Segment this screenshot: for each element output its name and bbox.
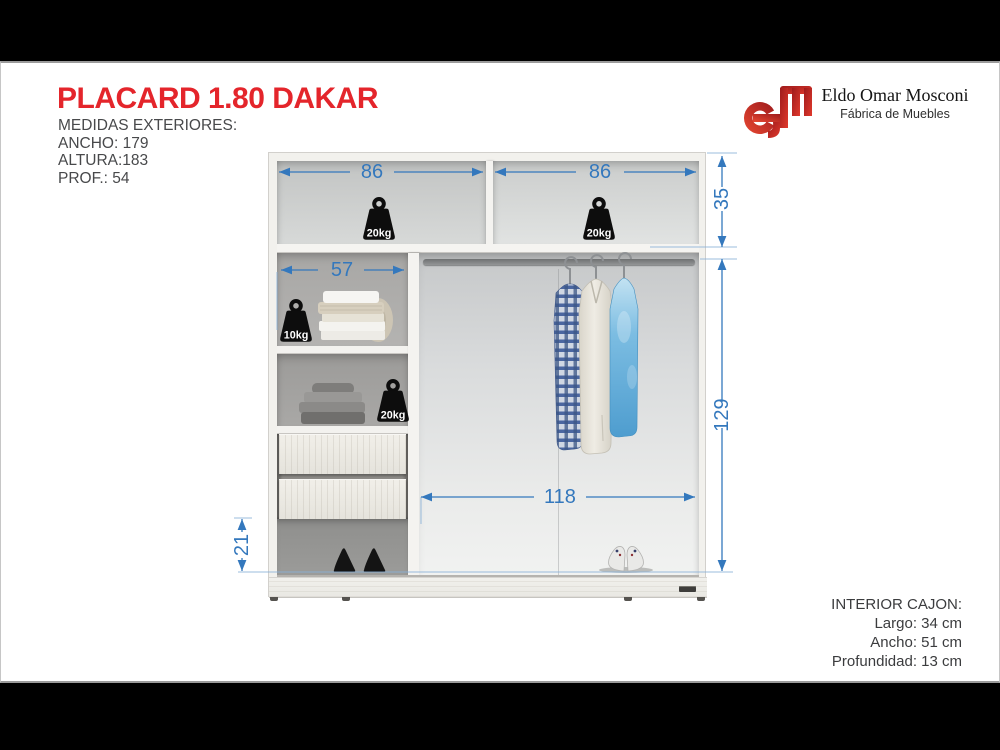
measurements-heading: MEDIDAS EXTERIORES: xyxy=(58,117,237,135)
weight-icon-20kg: 20kg xyxy=(359,197,399,243)
measurement-depth: PROF.: 54 xyxy=(58,170,237,188)
folded-clothes xyxy=(296,382,372,425)
wardrobe-foot xyxy=(342,597,350,601)
weight-icon-20kg: 20kg xyxy=(373,379,413,425)
shelf-board xyxy=(277,346,408,354)
weight-icon-20kg: 20kg xyxy=(579,197,619,243)
top-divider xyxy=(486,161,493,244)
folded-towels xyxy=(315,283,395,345)
page-title: PLACARD 1.80 DAKAR xyxy=(57,82,378,116)
hanging-garments xyxy=(544,247,654,469)
dimension-bottom-space-height: 21 xyxy=(231,523,253,567)
drawer-info-title: INTERIOR CAJON: xyxy=(640,595,962,614)
drawer-stack xyxy=(277,434,408,519)
drawer-info-length: Largo: 34 cm xyxy=(640,614,962,633)
black-heels xyxy=(330,546,394,573)
flyer: PLACARD 1.80 DAKAR MEDIDAS EXTERIORES: A… xyxy=(0,0,1000,750)
weight-icon-10kg: 10kg xyxy=(276,299,316,345)
svg-text:20kg: 20kg xyxy=(367,228,392,240)
shelf-board xyxy=(277,426,408,434)
drawer-interior-info: INTERIOR CAJON: Largo: 34 cm Ancho: 51 c… xyxy=(640,595,962,671)
blue-dress xyxy=(610,278,638,437)
drawer-info-width: Ancho: 51 cm xyxy=(640,633,962,652)
drawer-bottom xyxy=(279,479,406,520)
brand-logo-icon xyxy=(740,76,818,140)
svg-text:20kg: 20kg xyxy=(587,228,612,240)
dimension-left-shelf-width: 57 xyxy=(320,259,364,281)
drawer-info-depth: Profundidad: 13 cm xyxy=(640,652,962,671)
svg-text:20kg: 20kg xyxy=(381,410,406,422)
white-sneakers xyxy=(597,545,655,573)
brand-tagline: Fábrica de Muebles xyxy=(820,107,970,121)
plinth-handle xyxy=(679,586,696,592)
svg-text:10kg: 10kg xyxy=(284,330,309,342)
dimension-top-section-height: 35 xyxy=(711,177,733,221)
wardrobe-foot xyxy=(624,597,632,601)
dimension-top-right-width: 86 xyxy=(578,161,622,183)
brand-name: Eldo Omar Mosconi xyxy=(820,85,970,106)
dimension-top-left-width: 86 xyxy=(350,161,394,183)
wardrobe-foot xyxy=(270,597,278,601)
cream-coat xyxy=(579,279,613,454)
measurement-width: ANCHO: 179 xyxy=(58,135,237,153)
dimension-hanging-height: 129 xyxy=(711,391,733,439)
measurement-height: ALTURA:183 xyxy=(58,152,237,170)
drawer-top xyxy=(279,434,406,474)
exterior-measurements: MEDIDAS EXTERIORES: ANCHO: 179 ALTURA:18… xyxy=(58,117,237,187)
dimension-hanging-width: 118 xyxy=(536,486,584,508)
